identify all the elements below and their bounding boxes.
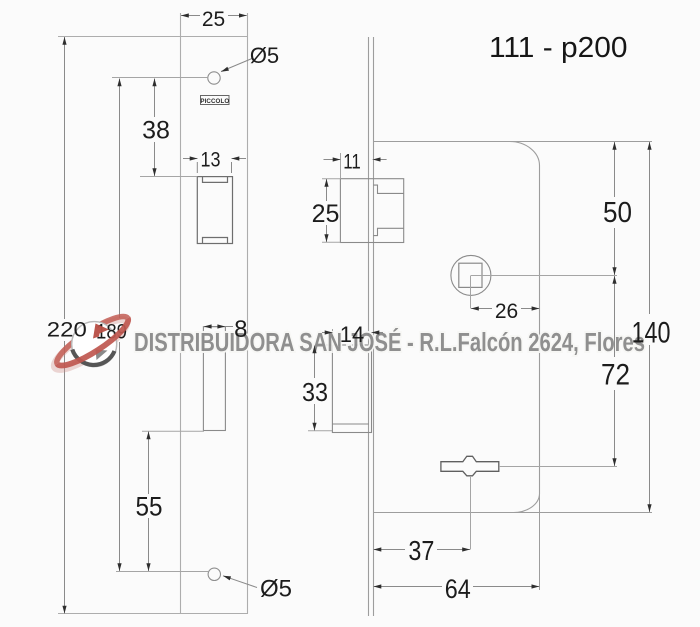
svg-text:PICCOLO: PICCOLO <box>200 98 229 105</box>
svg-text:25: 25 <box>202 8 225 31</box>
svg-text:140: 140 <box>632 317 671 350</box>
svg-text:37: 37 <box>408 535 434 566</box>
svg-text:72: 72 <box>601 359 630 392</box>
svg-text:DISTRIBUIDORA SAN JOSÉ - R.L.F: DISTRIBUIDORA SAN JOSÉ - R.L.Falcón 2624… <box>134 328 645 357</box>
svg-text:64: 64 <box>445 574 471 604</box>
svg-text:220: 220 <box>47 319 87 342</box>
svg-text:14: 14 <box>340 322 364 347</box>
svg-text:11: 11 <box>343 151 361 174</box>
svg-text:55: 55 <box>136 492 163 522</box>
svg-text:25: 25 <box>312 200 340 228</box>
svg-text:50: 50 <box>603 197 632 229</box>
svg-text:Ø5: Ø5 <box>250 43 279 68</box>
svg-text:111 - p200: 111 - p200 <box>489 32 628 64</box>
svg-text:26: 26 <box>495 300 518 323</box>
svg-text:33: 33 <box>302 377 328 407</box>
svg-text:38: 38 <box>142 117 170 145</box>
svg-text:13: 13 <box>201 148 221 171</box>
svg-text:Ø5: Ø5 <box>260 576 292 603</box>
svg-text:8: 8 <box>234 316 247 343</box>
